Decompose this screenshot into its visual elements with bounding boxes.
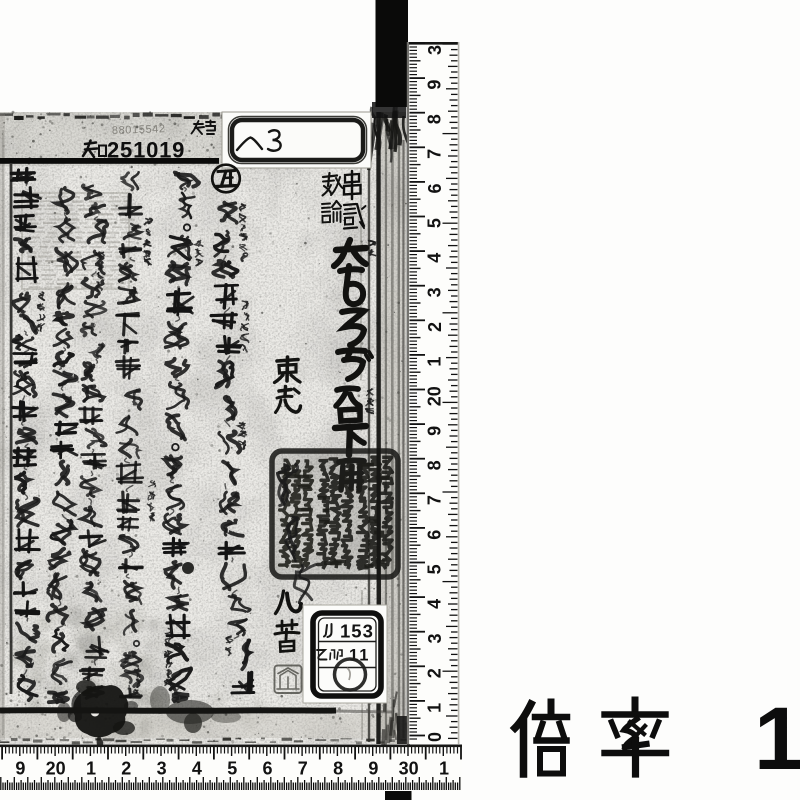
svg-text:4: 4 (425, 253, 445, 263)
svg-text:3: 3 (425, 633, 445, 643)
svg-text:7: 7 (425, 149, 445, 159)
svg-text:1: 1 (439, 759, 449, 779)
svg-text:7: 7 (425, 495, 445, 505)
svg-text:88015542: 88015542 (112, 123, 166, 137)
svg-text:6: 6 (425, 530, 445, 540)
svg-text:2: 2 (121, 759, 131, 779)
svg-text:1: 1 (425, 703, 445, 713)
svg-text:2: 2 (425, 668, 445, 678)
svg-text:8: 8 (333, 759, 343, 779)
svg-text:3: 3 (425, 287, 445, 297)
svg-text:2: 2 (425, 322, 445, 332)
svg-text:8: 8 (425, 460, 445, 470)
svg-text:20: 20 (425, 386, 445, 406)
svg-text:153: 153 (340, 621, 374, 642)
svg-text:8: 8 (425, 114, 445, 124)
svg-text:1: 1 (754, 688, 800, 788)
svg-text:5: 5 (425, 564, 445, 574)
svg-text:5: 5 (425, 218, 445, 228)
svg-text:20: 20 (46, 759, 66, 779)
svg-text:30: 30 (399, 759, 419, 779)
svg-text:1: 1 (86, 759, 96, 779)
svg-text:7: 7 (298, 759, 308, 779)
svg-text:0: 0 (425, 732, 445, 742)
svg-text:4: 4 (192, 759, 202, 779)
svg-text:6: 6 (262, 759, 272, 779)
svg-text:4: 4 (425, 599, 445, 609)
svg-text:3: 3 (157, 759, 167, 779)
svg-text:9: 9 (15, 759, 25, 779)
svg-text:3: 3 (425, 45, 445, 55)
svg-text:1: 1 (425, 357, 445, 367)
svg-text:9: 9 (425, 426, 445, 436)
svg-text:9: 9 (425, 80, 445, 90)
svg-text:9: 9 (368, 759, 378, 779)
svg-text:5: 5 (227, 759, 237, 779)
svg-text:6: 6 (425, 183, 445, 193)
